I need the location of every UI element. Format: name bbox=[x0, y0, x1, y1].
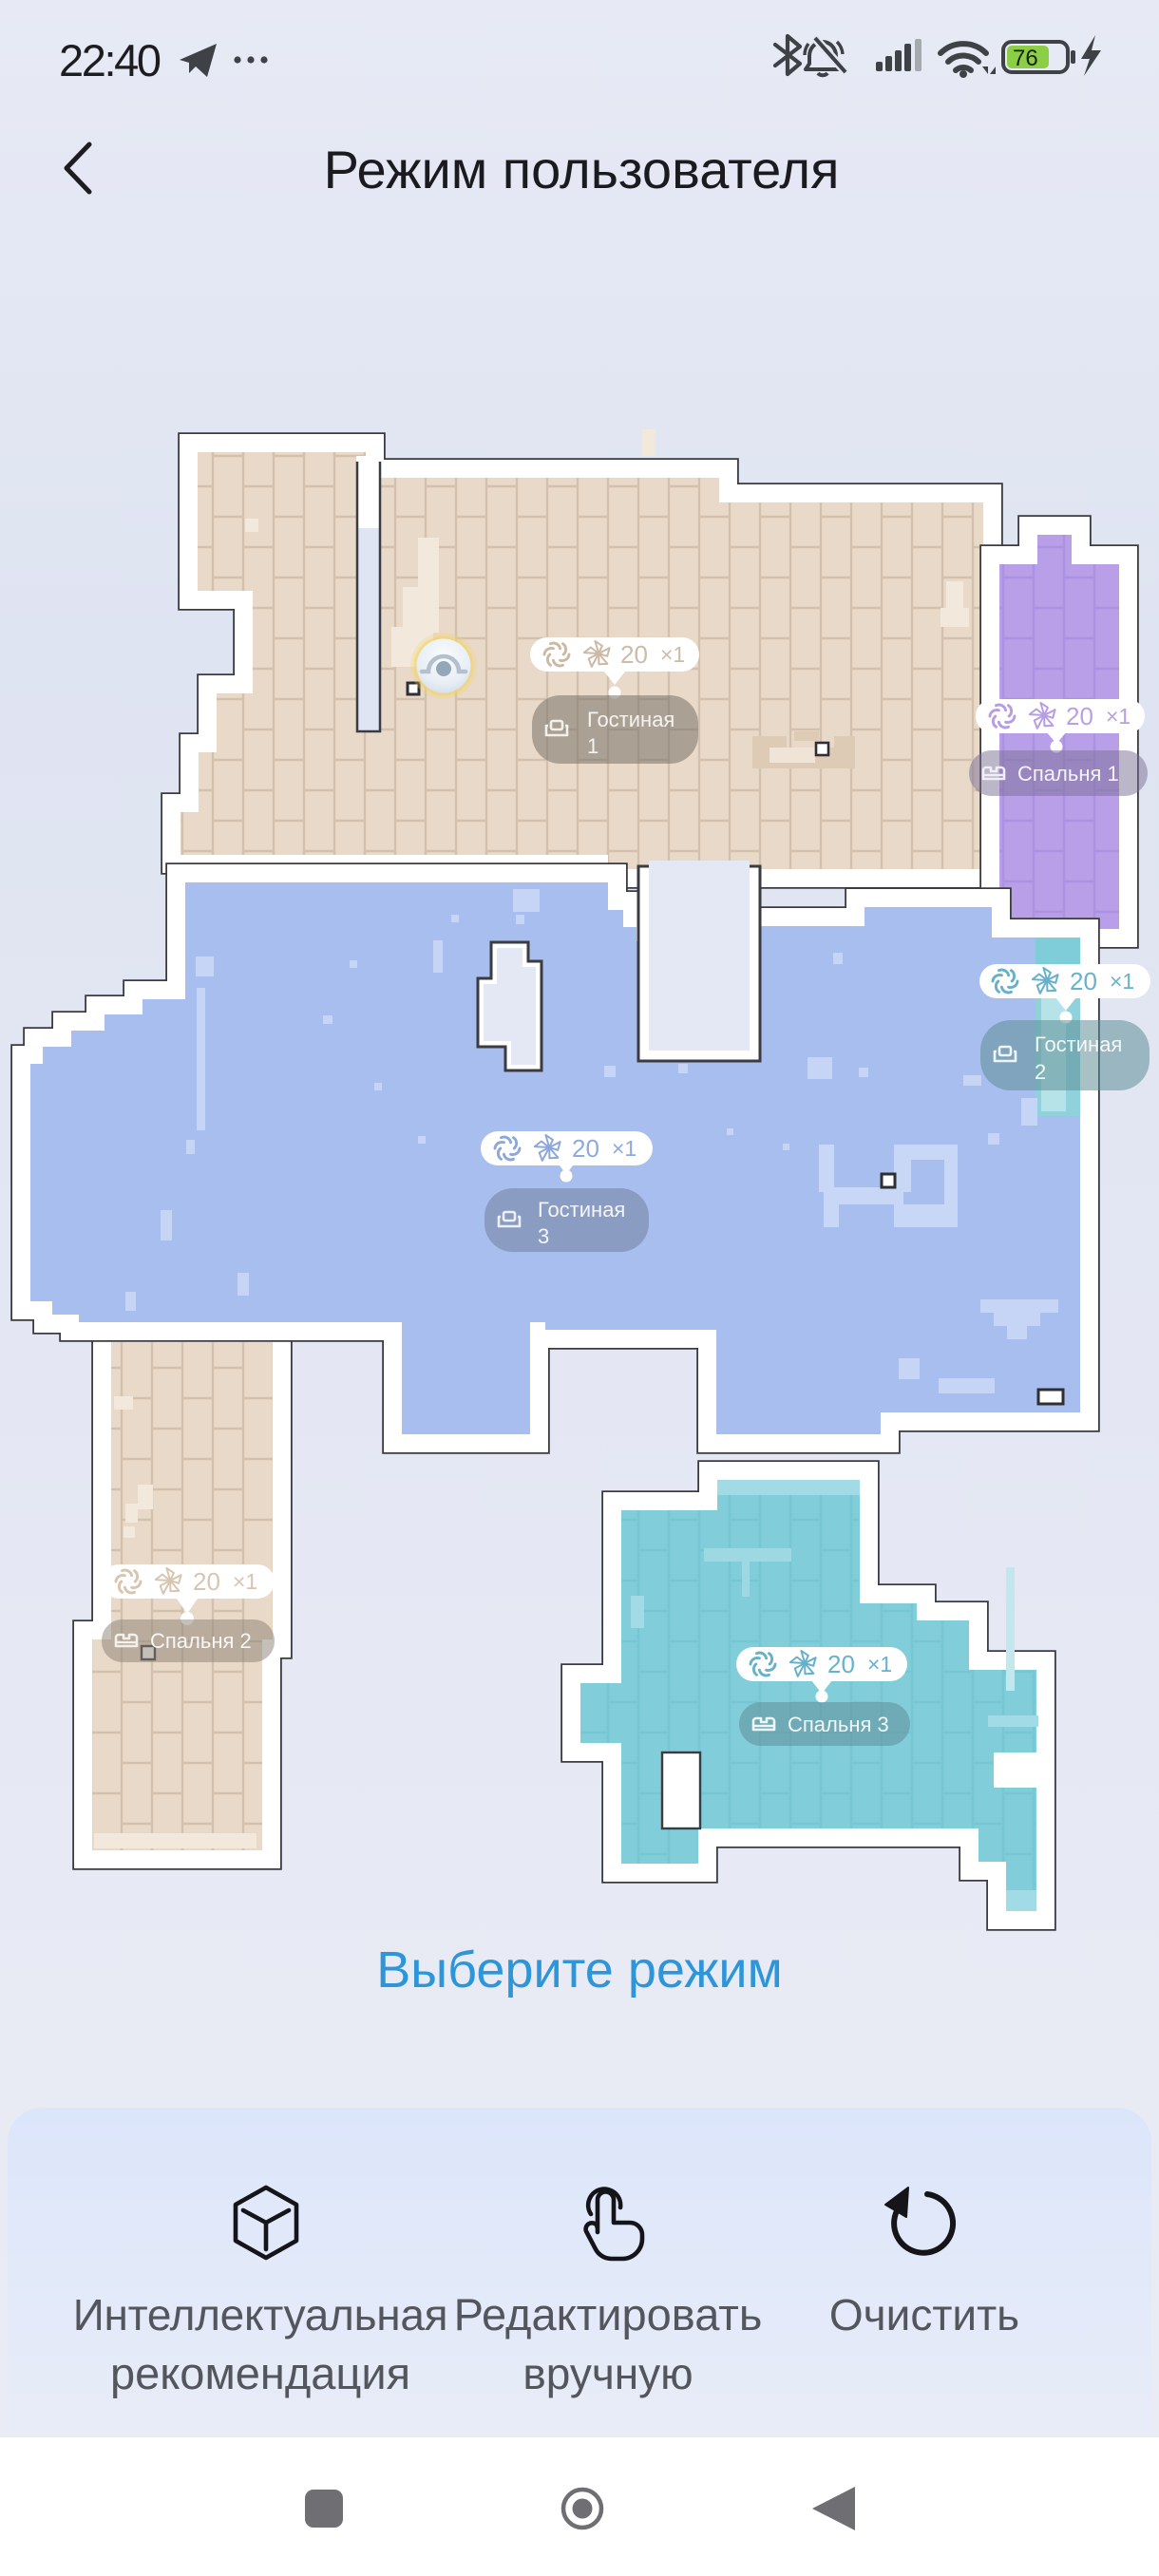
svg-text:1: 1 bbox=[587, 734, 598, 758]
svg-text:Гостиная: Гостиная bbox=[538, 1198, 625, 1222]
svg-text:20: 20 bbox=[572, 1134, 599, 1163]
svg-text:76: 76 bbox=[1013, 46, 1038, 71]
svg-text:20: 20 bbox=[1066, 702, 1093, 730]
svg-text:20: 20 bbox=[827, 1650, 855, 1678]
svg-text:Редактировать: Редактировать bbox=[454, 2289, 763, 2339]
svg-text:×1: ×1 bbox=[660, 642, 685, 667]
svg-text:20: 20 bbox=[193, 1567, 220, 1596]
svg-text:×1: ×1 bbox=[233, 1569, 257, 1594]
svg-text:Спальня 2: Спальня 2 bbox=[150, 1629, 252, 1653]
svg-text:20: 20 bbox=[620, 640, 648, 669]
svg-text:Интеллектуальная: Интеллектуальная bbox=[73, 2290, 448, 2339]
svg-text:×1: ×1 bbox=[612, 1136, 636, 1161]
svg-text:×1: ×1 bbox=[1110, 969, 1134, 994]
svg-text:20: 20 bbox=[1070, 967, 1097, 995]
svg-text:Выберите режим: Выберите режим bbox=[376, 1941, 782, 1998]
svg-text:вручную: вручную bbox=[522, 2349, 693, 2398]
svg-text:3: 3 bbox=[538, 1224, 549, 1248]
svg-text:Гостиная: Гостиная bbox=[1035, 1032, 1122, 1056]
svg-text:×1: ×1 bbox=[1106, 704, 1130, 729]
svg-text:×1: ×1 bbox=[867, 1652, 892, 1676]
svg-text:Очистить: Очистить bbox=[829, 2290, 1019, 2339]
svg-text:22:40: 22:40 bbox=[59, 35, 161, 85]
svg-text:Спальня 3: Спальня 3 bbox=[788, 1713, 889, 1736]
svg-text:Гостиная: Гостиная bbox=[587, 708, 674, 731]
svg-text:2: 2 bbox=[1035, 1060, 1046, 1084]
svg-text:рекомендация: рекомендация bbox=[110, 2348, 410, 2398]
svg-text:Спальня 1: Спальня 1 bbox=[1017, 762, 1119, 786]
svg-text:Режим пользователя: Режим пользователя bbox=[324, 140, 840, 199]
